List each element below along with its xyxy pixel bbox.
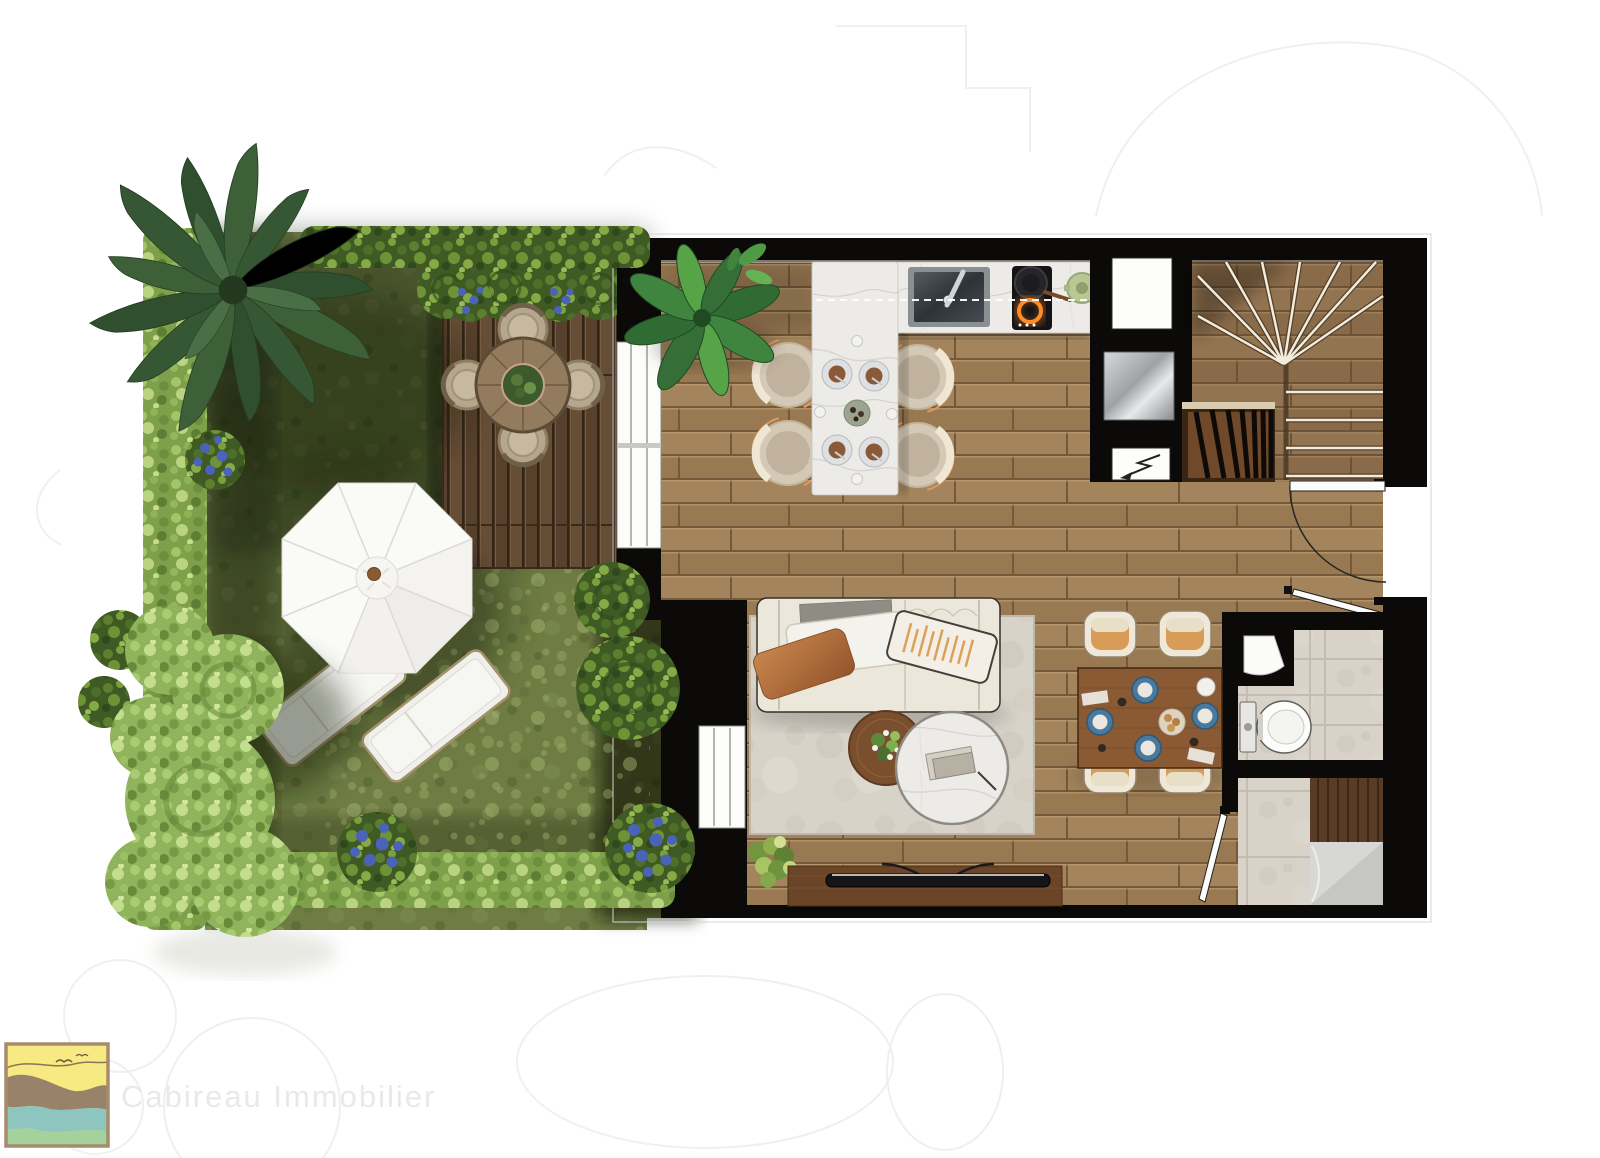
floor-plan-page: Cabireau Immobilier bbox=[0, 0, 1600, 1158]
company-watermark: Cabireau Immobilier bbox=[121, 1079, 436, 1115]
utility-column bbox=[1090, 240, 1192, 482]
parasol bbox=[282, 483, 472, 673]
dining-chair bbox=[1084, 611, 1136, 657]
coffee-table-marble bbox=[896, 712, 1008, 824]
door-leaf bbox=[1290, 481, 1385, 491]
shower-floor-tiles bbox=[1238, 778, 1310, 905]
balustrade bbox=[1182, 402, 1275, 482]
sofa bbox=[751, 598, 1000, 712]
tv-sideboard bbox=[788, 864, 1062, 912]
blue-flower-shrub bbox=[185, 430, 245, 490]
sliding-door-to-deck bbox=[617, 342, 661, 548]
tall-cabinet bbox=[1112, 258, 1172, 329]
garden-window bbox=[699, 726, 745, 828]
teapot bbox=[1197, 678, 1215, 696]
bush bbox=[574, 562, 650, 638]
dining-chair bbox=[1159, 611, 1211, 657]
parasol-knob bbox=[368, 568, 381, 581]
blue-flower-shrub bbox=[605, 803, 695, 893]
bush bbox=[576, 636, 680, 740]
winder-staircase bbox=[1182, 262, 1383, 482]
centerpiece bbox=[844, 400, 870, 426]
agency-logo bbox=[6, 1044, 108, 1146]
floor-plan-drawing bbox=[0, 0, 1600, 1158]
logo-sea-wave bbox=[6, 1106, 108, 1132]
teak-bench bbox=[1310, 778, 1383, 842]
building bbox=[613, 234, 1431, 922]
sink bbox=[908, 267, 990, 327]
toilet bbox=[1240, 701, 1311, 753]
appliance bbox=[1104, 352, 1174, 420]
blue-flower-shrub bbox=[337, 812, 417, 892]
signal-arrow-panel bbox=[1112, 448, 1170, 480]
